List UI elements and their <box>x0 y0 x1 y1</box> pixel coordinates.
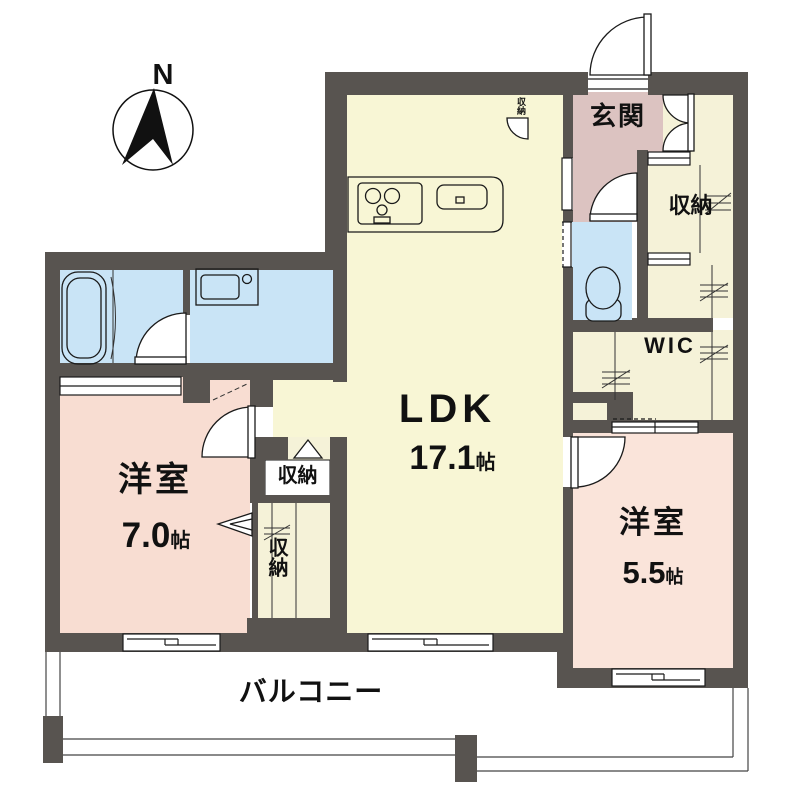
room-label-wic: WIC <box>620 334 720 357</box>
room-size-ldk-value: 17.1 <box>409 439 475 477</box>
floorplan-canvas: N 玄関 収納 WIC LDK 17.1帖 洋室 7.0帖 洋室 5.5帖 バル… <box>0 0 800 800</box>
room-size-bedroom5-value: 5.5 <box>622 555 665 590</box>
entrance-door-sill <box>588 76 648 92</box>
ldk-floor <box>347 95 563 633</box>
room-label-entrance: 玄関 <box>573 103 663 130</box>
window-bedroom7-top <box>60 377 181 395</box>
bedroom7-floor <box>60 377 250 633</box>
closet-label-entrance: 収納 <box>648 194 733 217</box>
window-ldk-balcony <box>368 634 493 651</box>
window-bedroom5-balcony <box>612 669 705 686</box>
room-size-ldk-unit: 帖 <box>476 452 496 474</box>
balcony-pillar-left <box>43 716 63 763</box>
room-label-bedroom5: 洋室 <box>592 507 714 540</box>
balcony-pillar-mid <box>455 735 477 782</box>
toilet <box>586 267 621 321</box>
closet-label-hall-upper: 収納 <box>265 466 330 487</box>
closet-entrance-door-band-top <box>648 152 690 165</box>
compass-north-label: N <box>145 60 181 90</box>
room-size-ldk: 17.1帖 <box>375 441 530 477</box>
room-label-ldk: LDK <box>375 388 520 430</box>
dashed-opening-strip <box>562 222 572 267</box>
closet-label-kitchen-pantry: 収納 <box>506 94 525 118</box>
room-label-balcony: バルコニー <box>225 677 397 706</box>
room-label-bedroom7: 洋室 <box>90 463 220 499</box>
room-size-bedroom5-unit: 帖 <box>666 567 684 587</box>
room-size-bedroom7-unit: 帖 <box>170 530 190 552</box>
room-size-bedroom7: 7.0帖 <box>85 518 227 555</box>
room-size-bedroom7-value: 7.0 <box>122 516 171 555</box>
wall-niche <box>562 158 572 210</box>
washroom-floor <box>190 265 335 366</box>
hall-floor <box>273 380 347 437</box>
room-size-bedroom5: 5.5帖 <box>590 557 716 590</box>
closet-entrance-door-band-bottom <box>648 253 690 265</box>
window-bedroom7-balcony <box>123 634 220 651</box>
closet-label-hall-lower: 収納 <box>260 517 286 597</box>
